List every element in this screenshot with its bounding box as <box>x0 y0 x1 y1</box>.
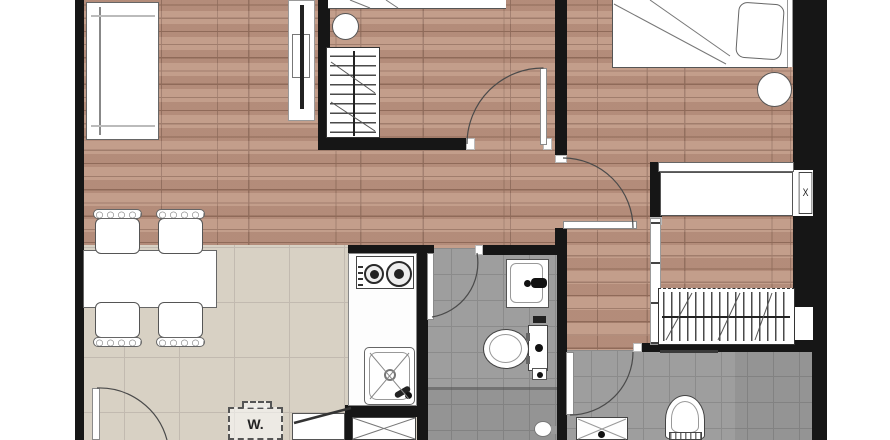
burner-center <box>370 270 379 279</box>
tv-screen <box>300 5 304 109</box>
stove-controls <box>358 262 363 286</box>
refrigerator <box>292 413 345 440</box>
dining-chair <box>158 218 203 254</box>
door-jamb <box>633 343 642 352</box>
door-leaf-bathroom-1 <box>427 253 434 320</box>
nightstand-2 <box>757 72 792 107</box>
ac-condenser-unit: X <box>799 172 813 214</box>
vanity-faucet <box>531 278 547 288</box>
chair-back <box>156 337 205 347</box>
wall <box>318 138 470 150</box>
chair-back <box>156 209 205 219</box>
wall <box>813 170 827 352</box>
door-leaf-entrance <box>92 388 100 440</box>
wardrobe-rail <box>353 51 355 136</box>
door-leaf-bedroom-1 <box>540 68 547 145</box>
stove <box>356 256 414 289</box>
wall <box>481 245 567 255</box>
wall <box>555 0 567 157</box>
wall <box>793 340 815 352</box>
vanity-sink <box>506 259 549 308</box>
door-jamb <box>475 245 483 255</box>
wall <box>345 405 417 417</box>
sofa-armrest-line <box>91 15 155 17</box>
wardrobe-rail <box>662 316 790 318</box>
toilet-hinge <box>526 356 530 364</box>
dining-chair <box>158 302 203 338</box>
toilet-1-bowl-inner <box>489 334 522 363</box>
bidet-spray <box>532 368 547 380</box>
faucet-knob <box>405 392 412 399</box>
bed-1 <box>328 0 506 9</box>
sink-drain <box>384 369 396 381</box>
toilet-roll-holder <box>533 316 546 323</box>
chair-back <box>93 337 142 347</box>
appliance-space <box>352 417 416 440</box>
sofa <box>86 2 159 140</box>
wall <box>793 0 827 170</box>
toilet-2-bowl-inner <box>671 401 699 433</box>
toilet-hinge <box>526 333 530 341</box>
burner-center <box>394 269 404 279</box>
burner <box>386 261 412 287</box>
bathroom-2-wet-zone <box>735 352 812 440</box>
dining-table <box>83 250 217 308</box>
window-strip <box>787 0 793 67</box>
flush-button <box>535 344 543 352</box>
kitchen-sink <box>364 347 415 405</box>
washing-machine-tab <box>242 401 272 408</box>
toilet-1-bowl <box>483 329 529 369</box>
console-ledge <box>658 162 794 172</box>
sofa-backrest-line <box>99 7 101 135</box>
dining-chair <box>95 302 140 338</box>
shower-drain <box>598 431 605 438</box>
pillow <box>735 1 785 60</box>
floor-drain-fixture <box>534 421 552 437</box>
drain-bracket <box>551 426 557 434</box>
wall <box>75 0 84 440</box>
dining-chair <box>95 218 140 254</box>
wall <box>793 216 815 307</box>
wardrobe-1 <box>326 47 380 138</box>
vanity-faucet-knob <box>524 280 531 287</box>
chair-back <box>93 209 142 219</box>
threshold-line <box>660 350 718 353</box>
washing-machine-area: W. <box>228 407 283 440</box>
tv-console <box>288 0 315 121</box>
built-in-console <box>660 172 793 216</box>
floor-plan: X <box>0 0 890 440</box>
shower-partition <box>428 387 557 390</box>
door-leaf-bathroom-2 <box>566 352 574 415</box>
wall <box>812 352 827 440</box>
bidet-spray-head <box>537 372 543 378</box>
door-leaf-hall <box>563 221 637 229</box>
sofa-armrest-line <box>91 125 155 127</box>
door-jamb <box>555 155 567 163</box>
door-jamb <box>466 138 475 150</box>
service-ledge-opening <box>793 307 813 340</box>
nightstand-1 <box>332 13 359 40</box>
wardrobe-2 <box>658 288 795 345</box>
burner <box>364 264 384 284</box>
toilet-2-base <box>669 432 702 440</box>
